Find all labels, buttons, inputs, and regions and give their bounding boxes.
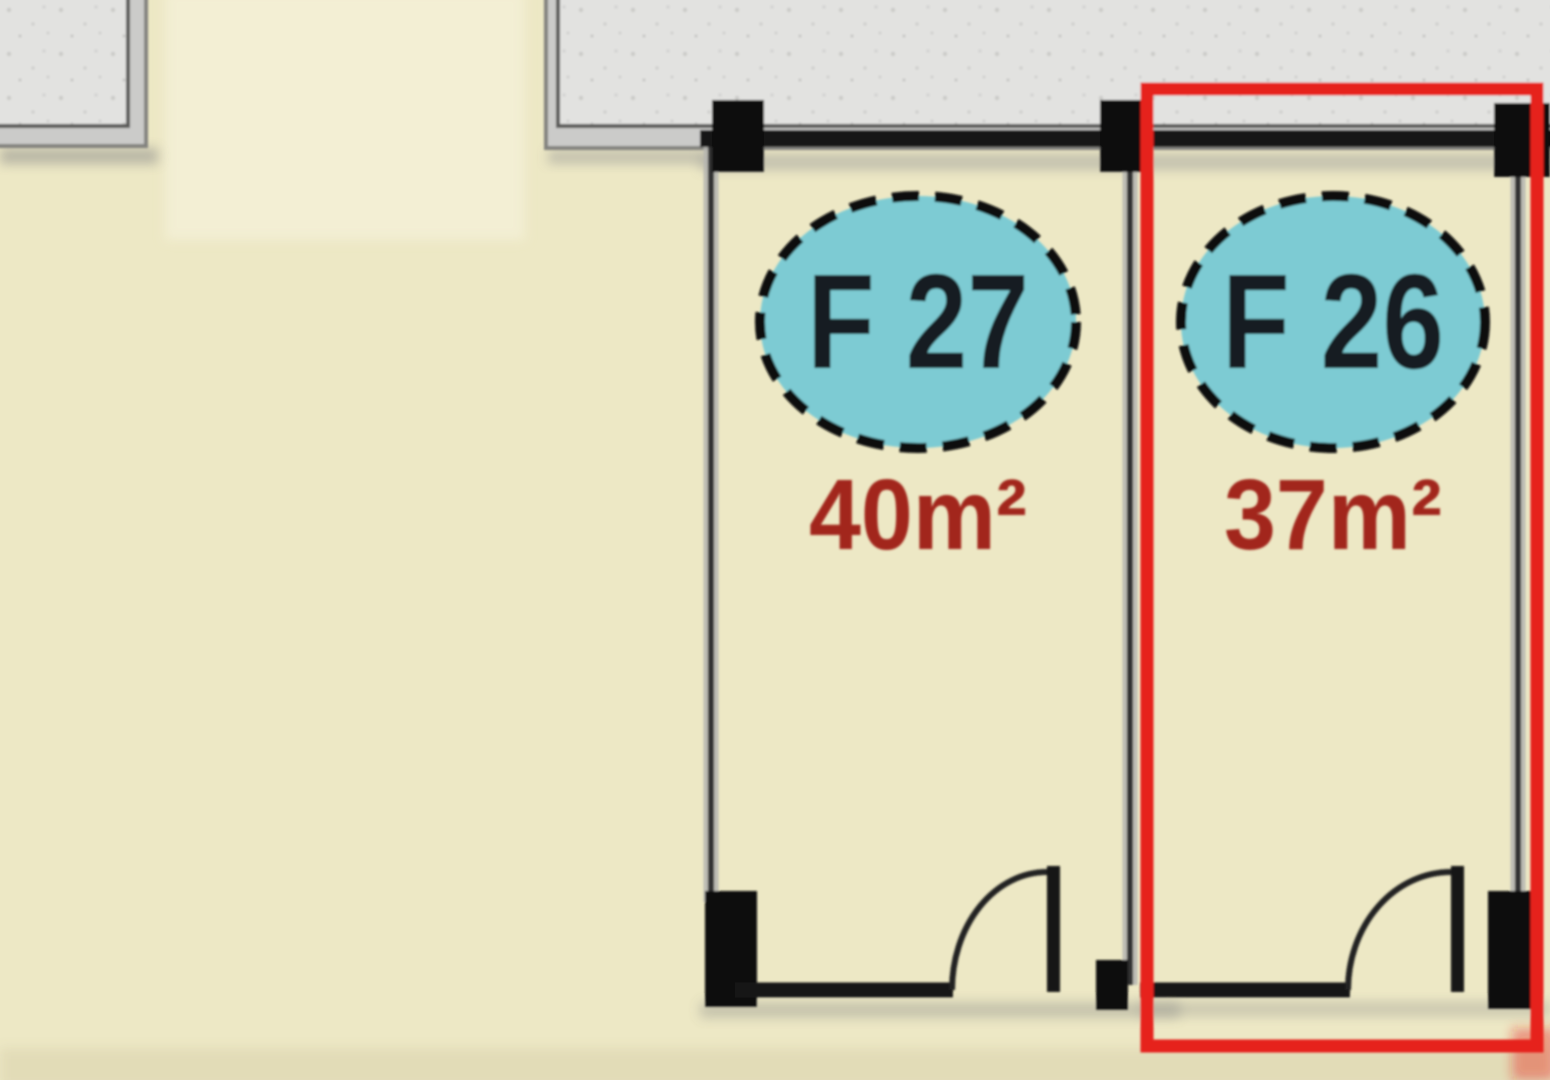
bottom-vignette [0, 1048, 1550, 1080]
floorplan-viewport: F 27 40m² F 26 37m² [0, 0, 1550, 1080]
corridor-block-left [0, 0, 128, 126]
unit-f26-label: F 26 [1222, 246, 1444, 397]
corridor-block-top [558, 0, 1550, 126]
corridor-left-shadow [0, 148, 158, 164]
light-band [165, 0, 525, 240]
wall-post-bottom-shared [1096, 960, 1128, 1010]
wall-post-top-f27-left [712, 100, 764, 172]
door-leaf-f26 [1451, 866, 1464, 992]
door-leaf-f27 [1047, 866, 1060, 992]
unit-f26-area: 37m² [1224, 459, 1442, 571]
corridor-right-shadow [548, 150, 708, 164]
unit-f27-label: F 27 [807, 246, 1029, 397]
unit-f27-area: 40m² [809, 459, 1027, 571]
unit-f26[interactable]: F 26 37m² [1181, 196, 1485, 571]
floorplan-canvas: F 27 40m² F 26 37m² [0, 0, 1550, 1080]
